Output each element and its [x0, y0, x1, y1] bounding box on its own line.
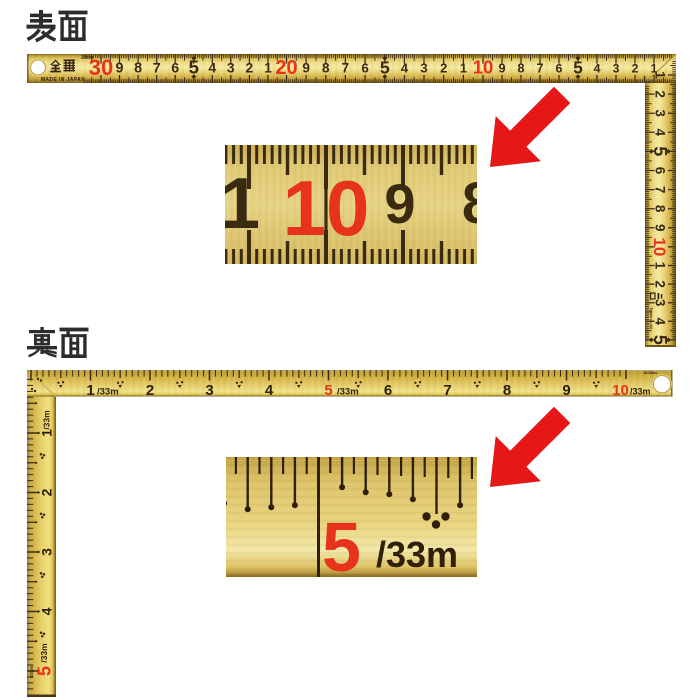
svg-text:5: 5	[35, 666, 55, 676]
svg-text:8: 8	[322, 61, 330, 76]
svg-text:1: 1	[460, 61, 467, 76]
svg-text:/33m: /33m	[337, 387, 359, 398]
svg-text:6: 6	[361, 61, 368, 76]
svg-text:4: 4	[265, 382, 274, 399]
svg-text:20: 20	[275, 57, 297, 79]
svg-text:/33m: /33m	[376, 534, 458, 575]
svg-text:2: 2	[246, 61, 254, 76]
svg-text:3: 3	[39, 548, 55, 556]
svg-text:7: 7	[153, 61, 161, 77]
svg-text:/33m: /33m	[630, 387, 651, 397]
svg-text:2: 2	[440, 61, 447, 76]
svg-text:/33m: /33m	[97, 387, 119, 398]
svg-text:8: 8	[653, 205, 668, 213]
svg-text:7: 7	[653, 186, 668, 194]
svg-text:1: 1	[653, 262, 668, 270]
svg-text:9: 9	[653, 224, 668, 232]
svg-text:2: 2	[653, 90, 668, 98]
svg-text:6: 6	[556, 62, 563, 76]
svg-text:1: 1	[264, 61, 272, 76]
svg-text:8: 8	[134, 61, 142, 77]
svg-text:7: 7	[342, 61, 349, 76]
svg-text:8: 8	[517, 62, 524, 76]
svg-text:Tajima co.,ltd: Tajima co.,ltd	[649, 307, 653, 328]
svg-text:9: 9	[562, 382, 570, 399]
svg-text:4: 4	[653, 129, 668, 137]
svg-text:5: 5	[322, 508, 361, 586]
svg-text:1: 1	[220, 164, 260, 244]
svg-text:3: 3	[653, 109, 668, 117]
svg-text:9: 9	[384, 172, 415, 235]
svg-text:9: 9	[498, 62, 505, 76]
svg-text:4: 4	[208, 60, 216, 76]
svg-text:4: 4	[39, 607, 55, 615]
svg-text:9: 9	[302, 61, 310, 76]
svg-text:10: 10	[650, 237, 669, 256]
svg-text:2: 2	[632, 62, 639, 76]
svg-text:2: 2	[653, 280, 668, 288]
svg-text:2: 2	[39, 488, 55, 496]
svg-text:10: 10	[612, 382, 629, 399]
svg-text:4: 4	[401, 61, 409, 76]
svg-text:10: 10	[283, 164, 370, 252]
svg-text:1: 1	[653, 71, 668, 79]
svg-text:8: 8	[503, 382, 511, 399]
svg-text:MADE IN JAPAN: MADE IN JAPAN	[41, 77, 85, 83]
svg-text:10: 10	[473, 57, 494, 78]
svg-text:3: 3	[205, 382, 213, 399]
svg-text:3: 3	[613, 62, 620, 76]
svg-text:3: 3	[227, 60, 235, 76]
svg-text:6: 6	[384, 382, 392, 399]
svg-text:6: 6	[653, 167, 668, 175]
svg-text:9: 9	[115, 61, 123, 77]
svg-text:/33m: /33m	[39, 643, 49, 663]
svg-text:4: 4	[594, 62, 601, 76]
svg-text:6: 6	[171, 61, 179, 77]
svg-text:3: 3	[420, 61, 427, 76]
svg-text:2: 2	[146, 382, 154, 399]
svg-text:8: 8	[462, 171, 494, 236]
svg-text:1: 1	[86, 382, 94, 399]
svg-text:7: 7	[537, 62, 544, 76]
svg-text:7: 7	[443, 382, 451, 399]
svg-text:4: 4	[653, 318, 668, 326]
svg-text:/33m: /33m	[42, 410, 52, 430]
svg-text:5: 5	[324, 382, 332, 399]
svg-text:3: 3	[653, 299, 668, 307]
svg-text:30cm: 30cm	[81, 55, 94, 61]
svg-text:16/33m: 16/33m	[643, 370, 657, 375]
svg-text:5/33m: 5/33m	[29, 666, 34, 678]
